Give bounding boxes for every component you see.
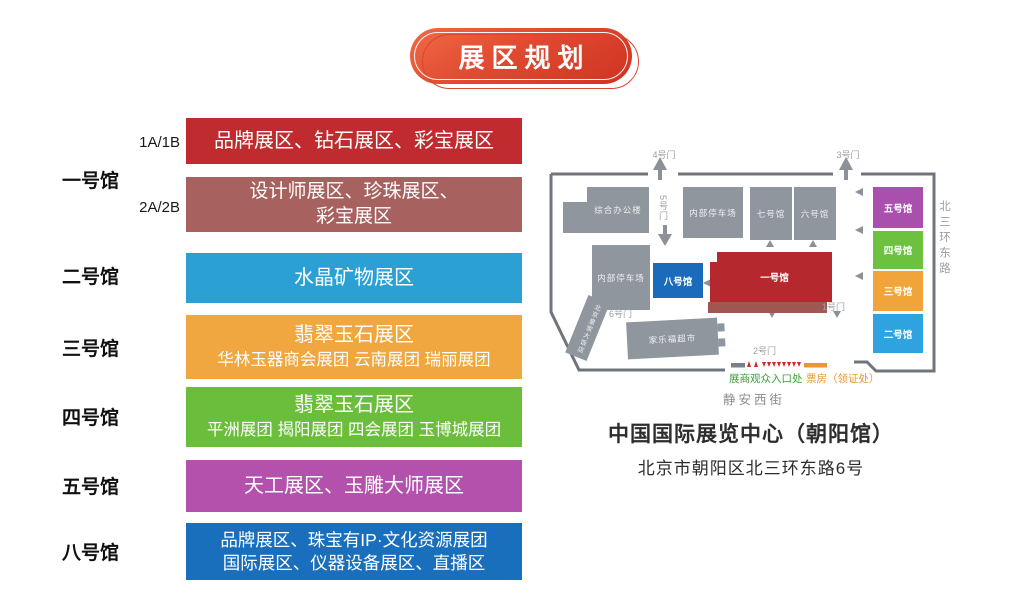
hall-label-5: 五号馆 [62, 472, 119, 499]
map-block-hall1-annex [708, 302, 827, 313]
zone-bar-text: 华林玉器商会展团 云南展团 瑞丽展团 [186, 350, 522, 371]
hall1-sub-label-1a1b: 1A/1B [100, 134, 180, 151]
supermarket-tab [717, 323, 724, 331]
entrance-red-marks [747, 361, 801, 367]
entrance-label: 展商观众入口处 [729, 371, 803, 386]
map-block-hall3: 三号馆 [873, 271, 923, 311]
zone-bar-text: 品牌展区、珠宝有IP·文化资源展团 [186, 529, 522, 552]
page-title: 展区规划 [451, 38, 590, 75]
hall-label-8: 八号馆 [62, 538, 119, 565]
street-label-south: 静安西街 [723, 389, 785, 408]
map-block-hall8: 八号馆 [653, 263, 703, 298]
hall1-sub-label-2a2b: 2A/2B [100, 199, 180, 216]
gate6-label: 6号门 [609, 307, 632, 320]
zone-bar-text: 水晶矿物展区 [186, 265, 522, 291]
zone-bar-text: 彩宝展区 [186, 205, 522, 230]
zone-bar-text: 品牌展区、钻石展区、彩宝展区 [186, 128, 522, 154]
gate2-label: 2号门 [753, 344, 776, 357]
map-block-supermarket: 家乐福超市 [626, 318, 719, 360]
supermarket-tab [718, 338, 725, 346]
hall7-hall6-arrow-icons [766, 240, 817, 247]
venue-address: 北京市朝阳区北三环东路6号 [545, 454, 957, 479]
venue-name: 中国国际展览中心（朝阳馆） [545, 418, 957, 448]
venue-site-map: 综合办公楼 内部停车场 七号馆 六号馆 内部停车场 家乐福超市 北京皇家大饭店 … [545, 145, 957, 420]
zone-bar-hall2: 水晶矿物展区 [186, 253, 522, 303]
hall-label-4: 四号馆 [62, 403, 119, 430]
hall-label-3: 三号馆 [62, 334, 119, 361]
map-block-hall5: 五号馆 [873, 187, 923, 228]
ticket-orange-mark [804, 363, 827, 368]
map-block-hall2: 二号馆 [873, 314, 923, 353]
gate1-label: 1号门 [822, 300, 845, 313]
gate4-label: 4号门 [645, 148, 683, 161]
zone-bar-text: 设计师展区、珍珠展区、 [186, 180, 522, 205]
supermarket-label: 家乐福超市 [648, 331, 696, 345]
gate5-label: 5号门 [657, 195, 670, 221]
map-block-office-annex [563, 202, 588, 233]
zone-bar-text: 翡翠玉石展区 [186, 322, 522, 348]
entrance-gray-mark [731, 363, 745, 368]
zone-bar-hall4: 翡翠玉石展区 平洲展团 揭阳展团 四会展团 玉博城展团 [186, 387, 522, 447]
zone-bar-text: 国际展区、仪器设备展区、直播区 [186, 552, 522, 575]
map-block-parking-north: 内部停车场 [683, 187, 743, 238]
exhibition-plan-infographic: 展区规划 1A/1B 2A/2B 一号馆 二号馆 三号馆 四号馆 五号馆 八号馆… [0, 0, 1018, 616]
gate5-arrow-icon [658, 225, 672, 246]
zone-bar-hall8: 品牌展区、珠宝有IP·文化资源展团 国际展区、仪器设备展区、直播区 [186, 523, 522, 580]
zone-bar-hall3: 翡翠玉石展区 华林玉器商会展团 云南展团 瑞丽展团 [186, 315, 522, 379]
zone-bar-text: 翡翠玉石展区 [186, 392, 522, 418]
map-block-hall6: 六号馆 [794, 187, 836, 240]
gate3-label: 3号门 [829, 148, 867, 161]
hall-label-2: 二号馆 [62, 262, 119, 289]
right-hall-arrow-icons [855, 188, 863, 280]
hall-label-1: 一号馆 [62, 166, 119, 193]
ticket-office-label: 票房（领证处） [806, 371, 880, 386]
map-block-hall1: 一号馆 [717, 252, 832, 302]
zone-bar-hall1-lower: 设计师展区、珍珠展区、 彩宝展区 [186, 177, 522, 232]
map-block-hall4: 四号馆 [873, 231, 923, 269]
title-banner: 展区规划 [410, 28, 632, 84]
road-label-east: 北三环东路 [936, 200, 952, 278]
zone-bar-text: 天工展区、玉雕大师展区 [186, 473, 522, 499]
map-block-hall7: 七号馆 [750, 187, 792, 240]
zone-bar-hall5: 天工展区、玉雕大师展区 [186, 460, 522, 512]
zone-bar-text: 平洲展团 揭阳展团 四会展团 玉博城展团 [186, 420, 522, 441]
map-block-office: 综合办公楼 [587, 187, 649, 233]
zone-bar-hall1-upper: 品牌展区、钻石展区、彩宝展区 [186, 118, 522, 164]
